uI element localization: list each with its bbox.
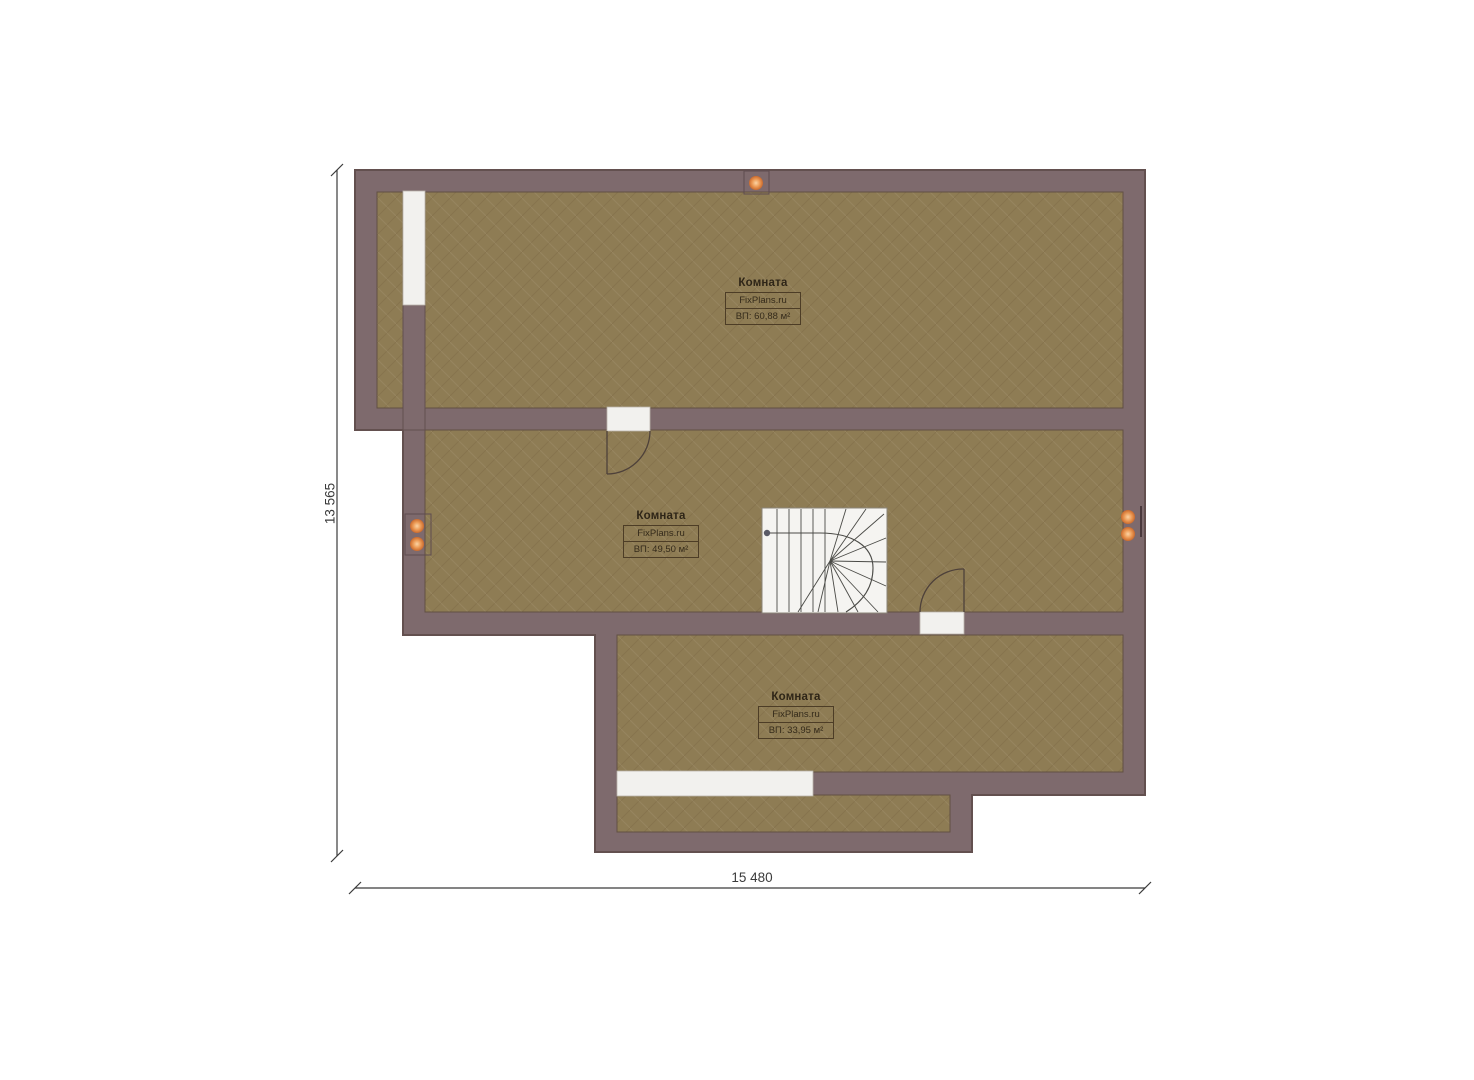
room-info-box: FixPlans.ru ВП: 49,50 м² — [623, 525, 699, 558]
outlet-marker — [749, 176, 763, 190]
room-info-box: FixPlans.ru ВП: 60,88 м² — [725, 292, 801, 325]
floor-plan-drawing — [0, 0, 1474, 1080]
staircase — [762, 508, 887, 613]
room-bottom-floor — [617, 635, 1123, 772]
room-label-top: Комната FixPlans.ru ВП: 60,88 м² — [725, 277, 801, 325]
dimension-label-left: 13 565 — [323, 476, 338, 532]
room-area-text: ВП: 60,88 м² — [726, 308, 800, 324]
room-label-bottom: Комната FixPlans.ru ВП: 33,95 м² — [758, 691, 834, 739]
floor-plan-page: Комната FixPlans.ru ВП: 60,88 м² Комната… — [0, 0, 1474, 1080]
room-extension-floor — [617, 795, 950, 832]
watermark-text: FixPlans.ru — [726, 293, 800, 308]
room-area-text: ВП: 33,95 м² — [759, 722, 833, 738]
outlet-marker — [410, 519, 424, 533]
outlet-marker — [410, 537, 424, 551]
dimension-label-bottom: 15 480 — [722, 870, 782, 885]
door-opening-1 — [607, 407, 650, 431]
building — [355, 170, 1145, 852]
room-name: Комната — [758, 691, 834, 703]
room-area-text: ВП: 49,50 м² — [624, 541, 698, 557]
wall-opening-top-left — [403, 191, 425, 305]
outlet-marker — [1121, 527, 1135, 541]
wide-wall-opening — [617, 771, 813, 796]
room-name: Комната — [623, 510, 699, 522]
stair-walk-line-start-dot — [764, 530, 770, 536]
watermark-text: FixPlans.ru — [759, 707, 833, 722]
room-info-box: FixPlans.ru ВП: 33,95 м² — [758, 706, 834, 739]
door-opening-2 — [920, 612, 964, 634]
staircase-outline — [762, 508, 887, 613]
room-label-middle: Комната FixPlans.ru ВП: 49,50 м² — [623, 510, 699, 558]
room-name: Комната — [725, 277, 801, 289]
watermark-text: FixPlans.ru — [624, 526, 698, 541]
outlet-marker — [1121, 510, 1135, 524]
